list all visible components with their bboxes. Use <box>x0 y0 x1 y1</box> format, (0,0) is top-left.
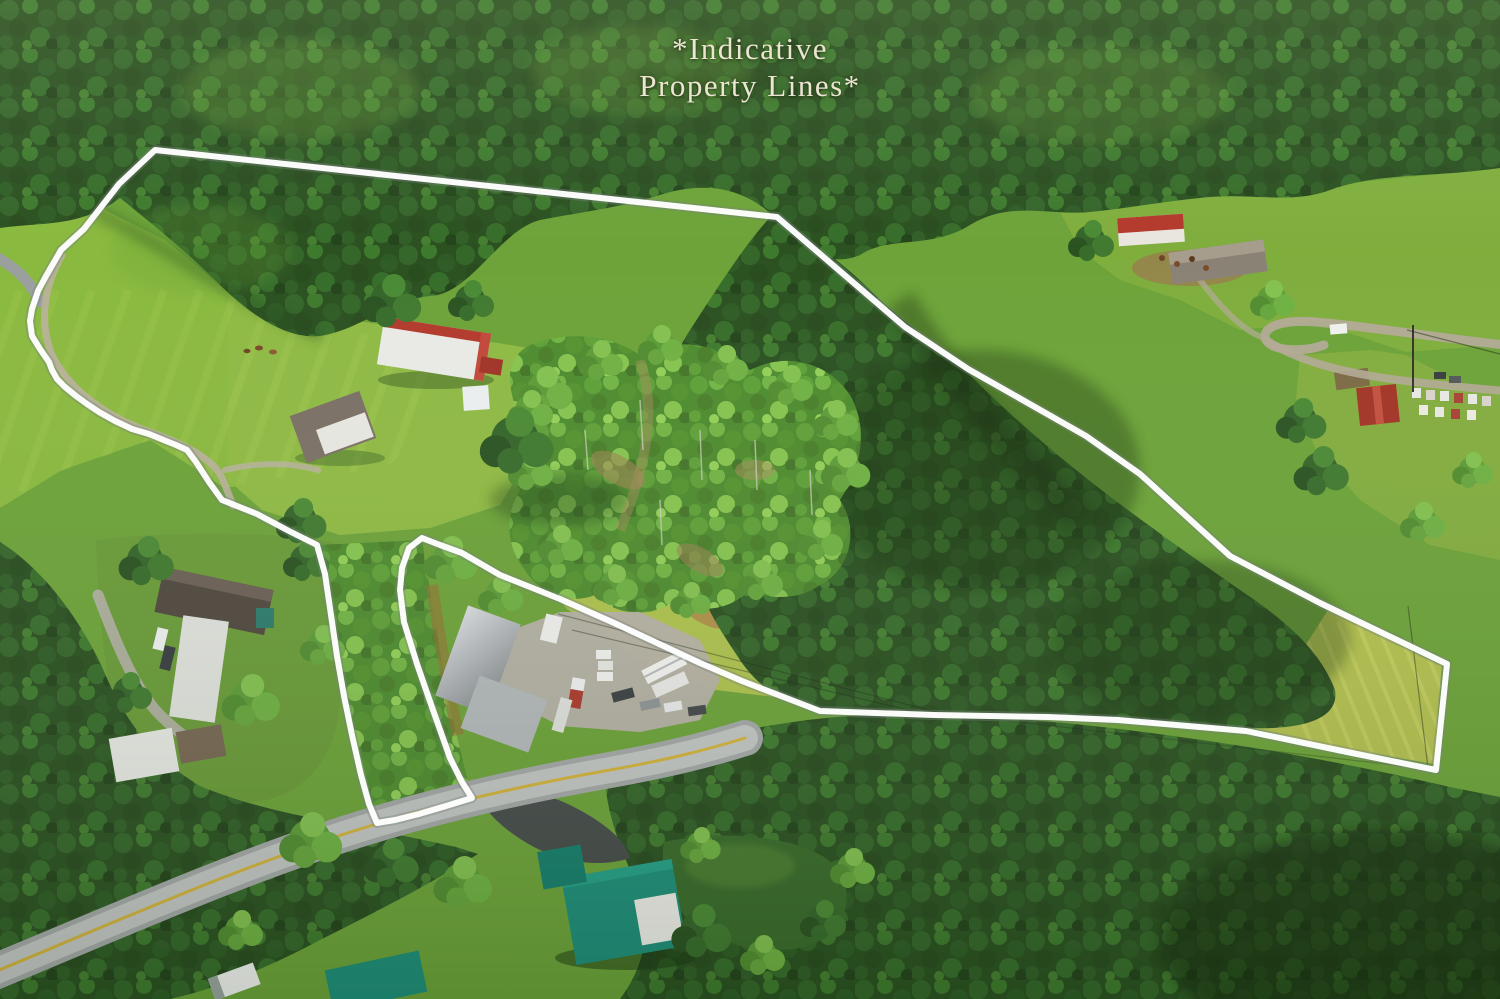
aerial-scene <box>0 0 1500 999</box>
aerial-photo: *Indicative Property Lines* <box>0 0 1500 999</box>
